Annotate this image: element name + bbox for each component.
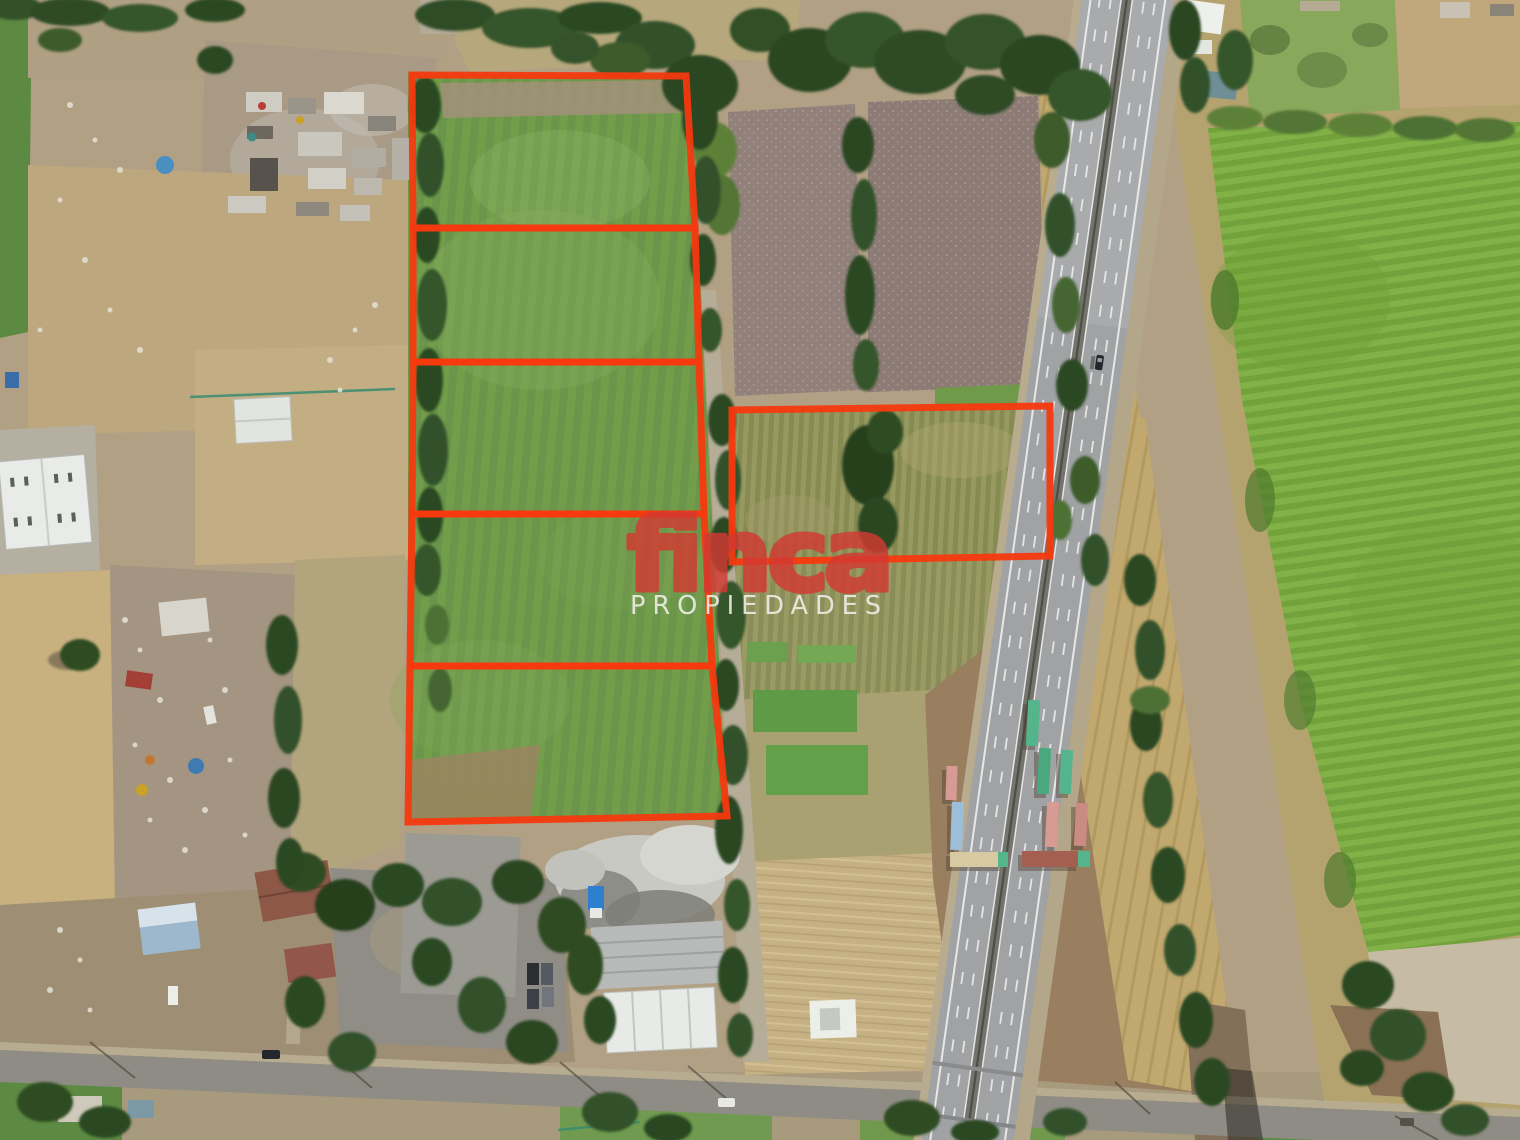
- small-pool: [156, 156, 174, 174]
- watermark-subtitle-text: PROPIEDADES: [630, 591, 888, 621]
- blue-roof-shed: [138, 903, 201, 956]
- white-pickup: [168, 986, 178, 1005]
- warehouse-left: [0, 454, 92, 549]
- blue-tarp: [5, 372, 19, 388]
- lone-tree: [60, 639, 100, 671]
- aerial-photo: finca PROPIEDADES: [0, 0, 1520, 1140]
- car-white: [718, 1098, 735, 1107]
- car-dark: [262, 1050, 280, 1059]
- aerial-scene: finca PROPIEDADES: [0, 0, 1520, 1140]
- blue-truck: [588, 886, 604, 910]
- watermark: finca PROPIEDADES: [627, 497, 889, 621]
- white-shed: [234, 397, 292, 444]
- white-house-bottom: [809, 999, 856, 1039]
- car-far: [1400, 1118, 1414, 1126]
